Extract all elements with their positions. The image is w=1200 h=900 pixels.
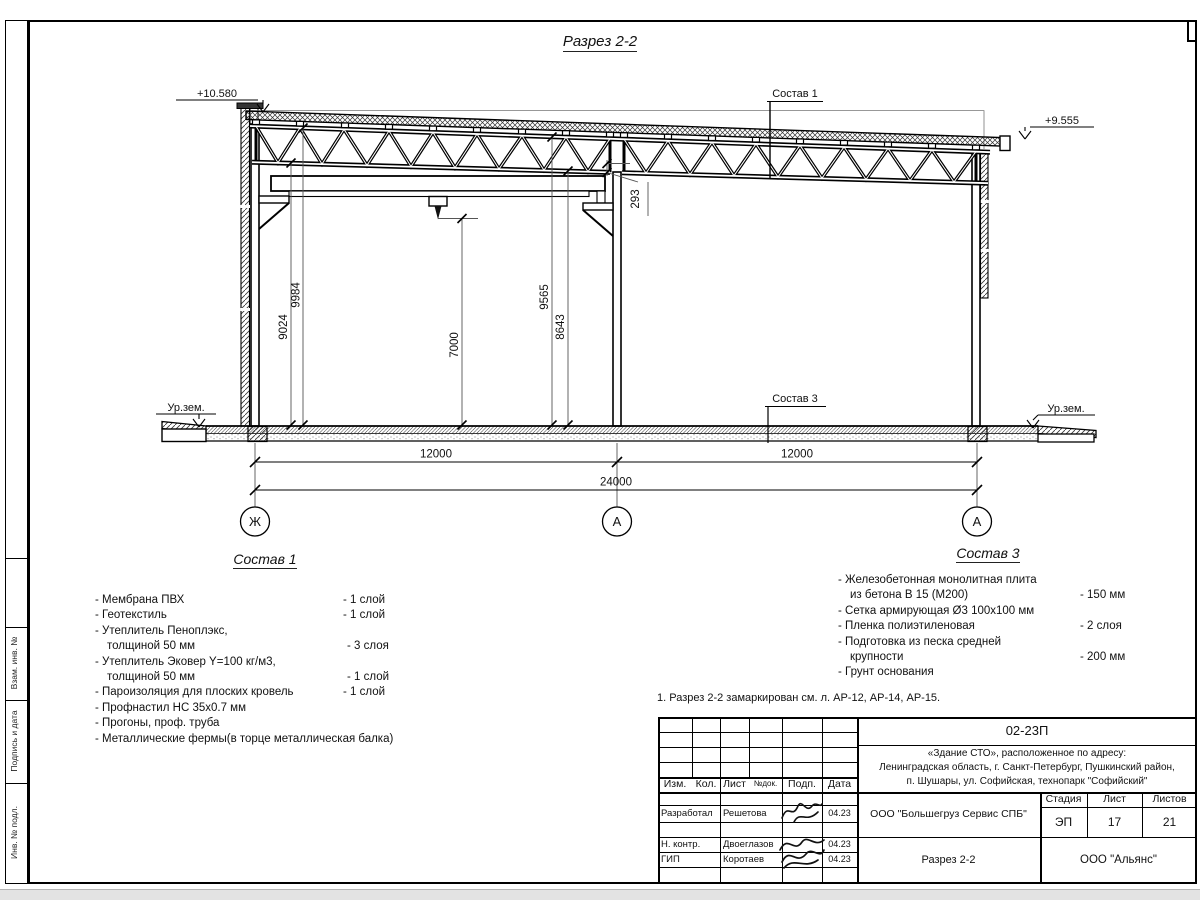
row-date: 04.23 <box>822 837 857 852</box>
col-kol: Кол. <box>692 777 720 792</box>
axis-letter-a2: А <box>973 514 982 529</box>
ground-level-right: Ур.зем. <box>1047 403 1084 415</box>
list-item: - Подготовка из песка средней <box>838 636 1178 651</box>
stage-value: ЭП <box>1040 807 1087 837</box>
row-name: Двоеглазов <box>723 837 781 852</box>
row-name: Решетова <box>723 805 781 822</box>
sheets-label: Листов <box>1142 792 1197 807</box>
project-line1: «Здание СТО», расположенное по адресу: <box>857 747 1197 761</box>
signature <box>780 798 824 826</box>
crane-beam <box>259 176 613 236</box>
col-ndok: №док. <box>749 777 782 792</box>
list-item: из бетона В 15 (М200)- 150 мм <box>838 589 1178 604</box>
project-line3: п. Шушары, ул. Софийская, технопарк "Соф… <box>857 775 1197 789</box>
drawing-sheet: Взам. инв. № Подпись и дата Инв. № подл.… <box>0 0 1200 900</box>
list-item: - Грунт основания <box>838 666 1178 681</box>
axis-letter-zh: Ж <box>249 514 261 529</box>
row-role: Н. контр. <box>661 837 719 852</box>
divider <box>658 762 857 763</box>
list-item: крупности- 200 мм <box>838 651 1178 666</box>
list-item: - Сетка армирующая Ø3 100х100 мм <box>838 605 1178 620</box>
ground-level-left: Ур.зем. <box>167 402 204 414</box>
company: ООО "Большегруз Сервис СПБ" <box>857 792 1040 837</box>
sheet-label: Лист <box>1087 792 1142 807</box>
sheets-value: 21 <box>1142 807 1197 837</box>
columns <box>251 124 980 426</box>
divider <box>720 717 721 884</box>
hoist <box>429 197 447 220</box>
divider <box>658 867 857 868</box>
horizontal-dimensions <box>250 443 982 507</box>
sheet-value: 17 <box>1087 807 1142 837</box>
row-date: 04.23 <box>822 852 857 867</box>
list-item: - Пленка полиэтиленовая- 2 слоя <box>838 620 1178 635</box>
list-item: - Профнастил НС 35х0.7 мм <box>95 702 515 717</box>
divider <box>658 747 857 748</box>
dim-span2: 12000 <box>781 449 813 461</box>
dim-293: 293 <box>630 189 642 208</box>
dim-7000: 7000 <box>449 332 461 358</box>
sostav1-title-text: Состав 1 <box>233 551 296 569</box>
sostav3-title: Состав 3 <box>838 545 1138 561</box>
doc-code: 02-23П <box>857 717 1197 745</box>
right-wall-panels <box>980 153 989 298</box>
drawing-name: Разрез 2-2 <box>857 837 1040 884</box>
list-item: - Железобетонная монолитная плита <box>838 574 1178 589</box>
row-name: Коротаев <box>723 852 781 867</box>
stage-label: Стадия <box>1040 792 1087 807</box>
list-item: - Мембрана ПВХ- 1 слой <box>95 594 515 609</box>
elevation-left-value: +10.580 <box>197 88 237 100</box>
dim-span1: 12000 <box>420 449 452 461</box>
org: ООО "Альянс" <box>1040 837 1197 884</box>
sostav1-list: - Мембрана ПВХ- 1 слой - Геотекстиль- 1 … <box>95 594 515 748</box>
sostav1-title: Состав 1 <box>95 551 435 567</box>
row-role: ГИП <box>661 852 719 867</box>
divider <box>658 732 857 733</box>
list-item: - Геотекстиль- 1 слой <box>95 609 515 624</box>
divider <box>857 745 1197 746</box>
floor-slab <box>162 422 1096 443</box>
dim-9984: 9984 <box>291 282 303 308</box>
row-date: 04.23 <box>822 805 857 822</box>
divider <box>658 822 857 823</box>
list-item: - Утеплитель Эковер Y=100 кг/м3, <box>95 656 515 671</box>
axis-letter-a1: А <box>613 514 622 529</box>
col-data: Дата <box>822 777 857 792</box>
row-role: Разработал <box>661 805 719 822</box>
sostav3-list: - Железобетонная монолитная плита из бет… <box>838 574 1178 682</box>
note: 1. Разрез 2-2 замаркирован см. л. АР-12,… <box>657 692 1187 704</box>
dim-9565: 9565 <box>539 284 551 310</box>
list-item: - Утеплитель Пеноплэкс, <box>95 625 515 640</box>
signature <box>778 836 826 872</box>
list-item: - Металлические фермы(в торце металличес… <box>95 733 515 748</box>
col-podp: Подп. <box>782 777 822 792</box>
divider <box>692 717 693 779</box>
dim-8643: 8643 <box>555 314 567 340</box>
dim-9024: 9024 <box>278 314 290 340</box>
elevation-right-value: +9.555 <box>1045 115 1079 127</box>
dim-total: 24000 <box>600 477 632 489</box>
list-item: - Прогоны, проф. труба <box>95 717 515 732</box>
viewer-bottom-bar <box>0 889 1200 900</box>
list-item: - Пароизоляция для плоских кровель- 1 сл… <box>95 686 515 701</box>
callout-sostav1: Состав 1 <box>772 88 818 100</box>
col-list: Лист <box>720 777 749 792</box>
sostav3-title-text: Состав 3 <box>956 545 1019 563</box>
divider <box>749 717 750 779</box>
list-item: толщиной 50 мм- 1 слой <box>95 671 515 686</box>
col-izm: Изм. <box>658 777 692 792</box>
project-line2: Ленинградская область, г. Санкт-Петербур… <box>857 761 1197 775</box>
list-item: толщиной 50 мм- 3 слоя <box>95 640 515 655</box>
callout-sostav3: Состав 3 <box>772 393 818 405</box>
